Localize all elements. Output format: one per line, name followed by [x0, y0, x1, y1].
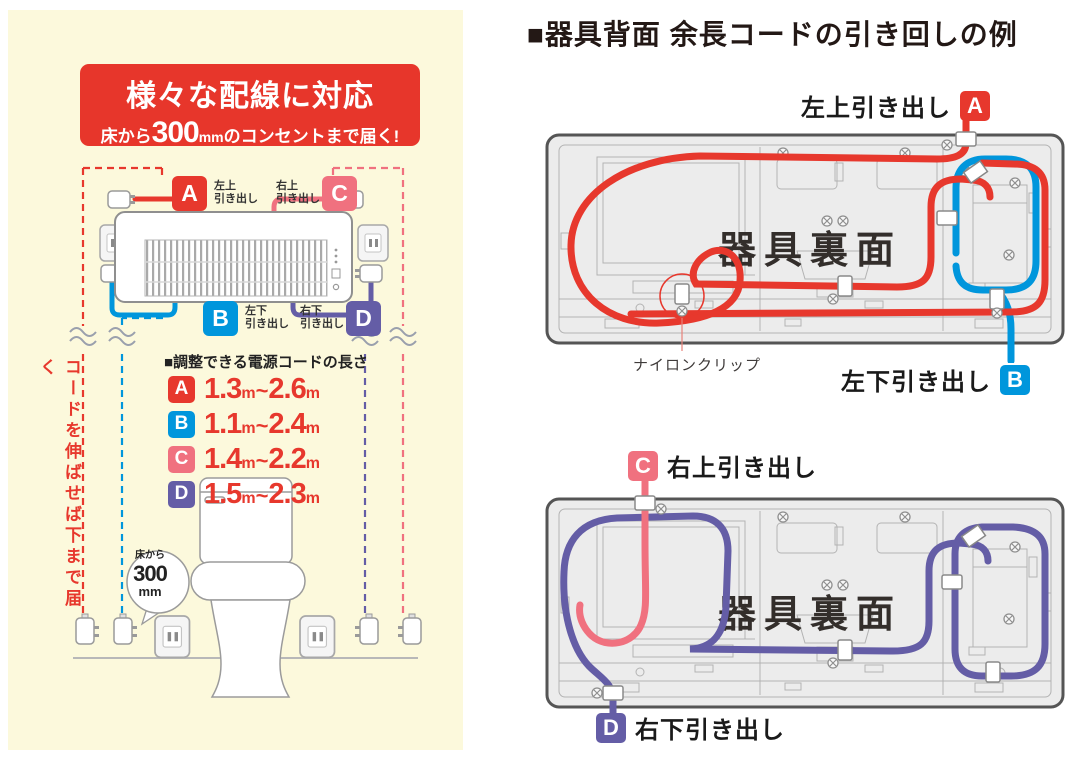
badge-c: C	[322, 176, 357, 211]
cord-length-heading: ■調整できる電源コードの長さ	[164, 351, 368, 372]
callout-a-text: 左上引き出し	[801, 88, 951, 123]
banner-subtitle: 床から300mmのコンセントまで届く!	[80, 116, 420, 150]
page: 様々な配線に対応 床から300mmのコンセントまで届く! A 左上引き出し 右上…	[0, 0, 1077, 762]
rear-panel-label-top: 器具裏面	[718, 230, 902, 272]
rear-panel-diagram-ab: 器具裏面	[545, 113, 1065, 363]
callout-d-badge: D	[596, 713, 626, 743]
heater-unit-illustration	[115, 212, 352, 302]
row-value-b: 1.1m~2.4m	[204, 408, 320, 441]
row-badge-c: C	[168, 446, 195, 473]
row-value-d: 1.5m~2.3m	[204, 478, 320, 511]
callout-c: C 右上引き出し	[628, 448, 817, 483]
badge-b: B	[203, 301, 238, 336]
toilet-illustration	[191, 478, 305, 697]
cord-length-row-b: B 1.1m~2.4m	[168, 408, 320, 440]
cord-length-row-a: A 1.3m~2.6m	[168, 373, 320, 405]
badge-a: A	[172, 176, 207, 211]
row-value-c: 1.4m~2.2m	[204, 443, 320, 476]
callout-d-text: 右下引き出し	[635, 710, 785, 745]
rear-panel-diagram-cd: 器具裏面	[545, 477, 1065, 727]
label-c: 右上引き出し	[276, 180, 320, 206]
cord-length-row-d: D 1.5m~2.3m	[168, 478, 320, 510]
banner-sub-suffix: のコンセントまで届く!	[224, 127, 400, 146]
callout-c-text: 右上引き出し	[667, 448, 817, 483]
banner: 様々な配線に対応 床から300mmのコンセントまで届く!	[80, 64, 420, 146]
floor-plug-d-icon	[355, 614, 378, 644]
row-value-a: 1.3m~2.6m	[204, 373, 320, 406]
cable-clip	[838, 640, 852, 660]
banner-sub-unit: mm	[199, 129, 224, 145]
cable-clip	[603, 686, 623, 700]
callout-b: 左下引き出し B	[840, 362, 1030, 397]
nylon-clip-note: ナイロンクリップ	[633, 354, 761, 375]
cable-clip	[635, 496, 655, 510]
cable-clip	[942, 575, 962, 589]
banner-sub-prefix: 床から	[101, 127, 152, 146]
callout-b-text: 左下引き出し	[841, 362, 991, 397]
vertical-note: コードを伸ばせば下まで届く	[34, 358, 84, 624]
right-title: ■器具背面 余長コードの引き回しの例	[527, 13, 1018, 53]
callout-a-badge: A	[960, 91, 990, 121]
floor-plug-c-icon	[398, 614, 421, 644]
wall-outlet-right-icon	[358, 225, 388, 261]
badge-d: D	[346, 301, 381, 336]
banner-sub-value: 300	[152, 116, 199, 149]
label-b: 左下引き出し	[245, 305, 289, 331]
rear-panel-label-bottom: 器具裏面	[718, 594, 902, 636]
floor-outlet-left-icon	[155, 616, 190, 657]
row-badge-d: D	[168, 481, 195, 508]
cord-length-row-c: C 1.4m~2.2m	[168, 443, 320, 475]
callout-a: 左上引き出し A	[800, 88, 990, 123]
floor-plug-b-icon	[114, 614, 137, 644]
cable-clip	[937, 211, 957, 225]
height-bubble-text: 床から 300 mm	[121, 551, 179, 598]
callout-d: D 右下引き出し	[596, 710, 785, 745]
banner-title: 様々な配線に対応	[80, 71, 420, 115]
cable-clip	[986, 662, 1000, 682]
label-d: 右下引き出し	[300, 305, 344, 331]
floor-outlet-right-icon	[300, 616, 335, 657]
row-badge-a: A	[168, 376, 195, 403]
label-a: 左上引き出し	[214, 180, 258, 206]
cable-clip	[838, 276, 852, 296]
plug-icon-d	[355, 265, 382, 282]
row-badge-b: B	[168, 411, 195, 438]
plug-icon-a	[108, 191, 135, 208]
callout-b-badge: B	[1000, 365, 1030, 395]
cable-clip	[956, 132, 976, 146]
cable-clip	[990, 289, 1004, 309]
cable-clip	[675, 284, 689, 304]
callout-c-badge: C	[628, 451, 658, 481]
